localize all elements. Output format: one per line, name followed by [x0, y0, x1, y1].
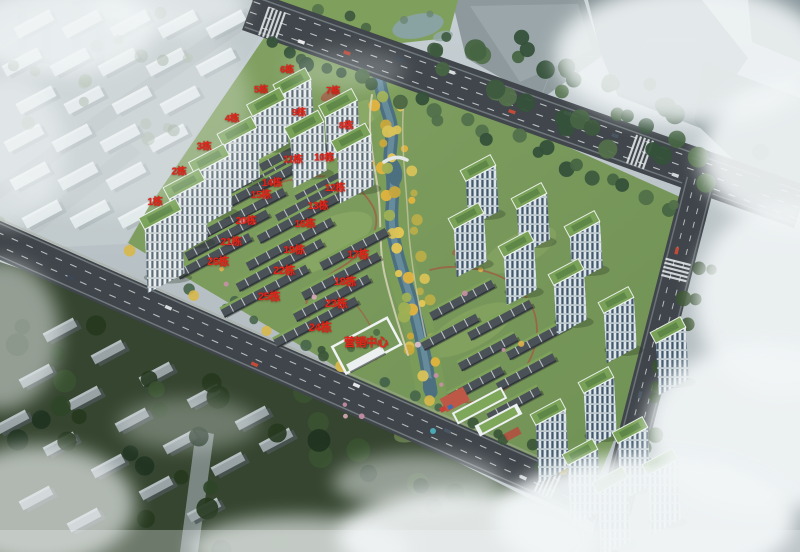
rendering-canvas [0, 0, 800, 552]
masterplan-aerial-rendering: 1栋2栋3栋4栋5栋6栋7栋8栋9栋10栋11栋12栋13栋14栋15栋16栋1… [0, 0, 800, 552]
